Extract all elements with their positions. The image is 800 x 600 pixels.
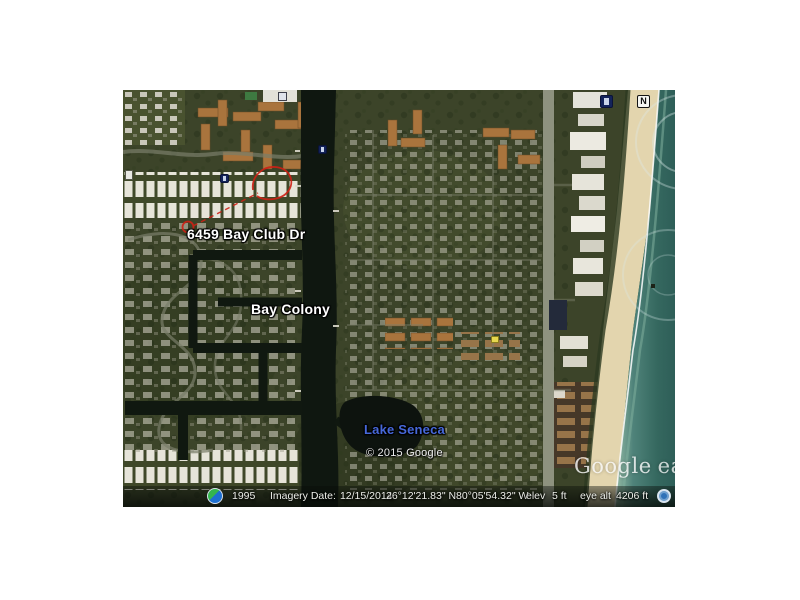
copyright-label: © 2015 Google [366,447,443,459]
status-bar: 1995 Imagery Date:12/15/2014 26°12'21.83… [123,486,675,507]
yellow-marker-icon[interactable] [491,336,499,343]
satellite-imagery [123,90,675,507]
imagery-date: Imagery Date:12/15/2014 [270,490,393,502]
placemark-glyph [321,147,324,152]
imagery-date-value: 12/15/2014 [340,490,393,502]
placemark-glyph [223,176,226,181]
placemark-icon[interactable] [600,95,613,108]
google-earth-watermark: Googleearth [574,454,675,478]
tennis-court [245,92,257,100]
lake-label: Lake Seneca [364,422,445,437]
placemark-icon[interactable] [278,92,287,101]
elevation-value: 5 ft [552,490,567,502]
placemark-icon[interactable] [220,174,229,183]
placemark-icon[interactable] [318,145,327,154]
eye-alt-label: eye alt [580,490,611,502]
placemark-glyph [604,98,609,105]
historical-imagery-icon[interactable] [207,488,223,504]
status-circle-icon [657,489,671,503]
page-canvas: N 6459 Bay Club Dr Bay Colony Lake Senec… [0,0,800,600]
latitude-readout: 26°12'21.83" N [386,490,456,502]
north-indicator-icon[interactable]: N [637,95,650,108]
placemark-icon[interactable] [125,170,133,180]
watermark-earth: earth [658,454,675,478]
elevation-label: elev [526,490,545,502]
neighborhood-label: Bay Colony [251,301,330,317]
highway-a1a [543,90,554,507]
watermark-google: Google [574,454,652,478]
eye-alt-value: 4206 ft [616,490,648,502]
timeline-year[interactable]: 1995 [232,490,255,502]
address-label: 6459 Bay Club Dr [187,226,305,242]
imagery-date-label: Imagery Date: [270,490,336,502]
map-viewport[interactable]: N 6459 Bay Club Dr Bay Colony Lake Senec… [123,90,675,507]
longitude-readout: 80°05'54.32" W [456,490,528,502]
